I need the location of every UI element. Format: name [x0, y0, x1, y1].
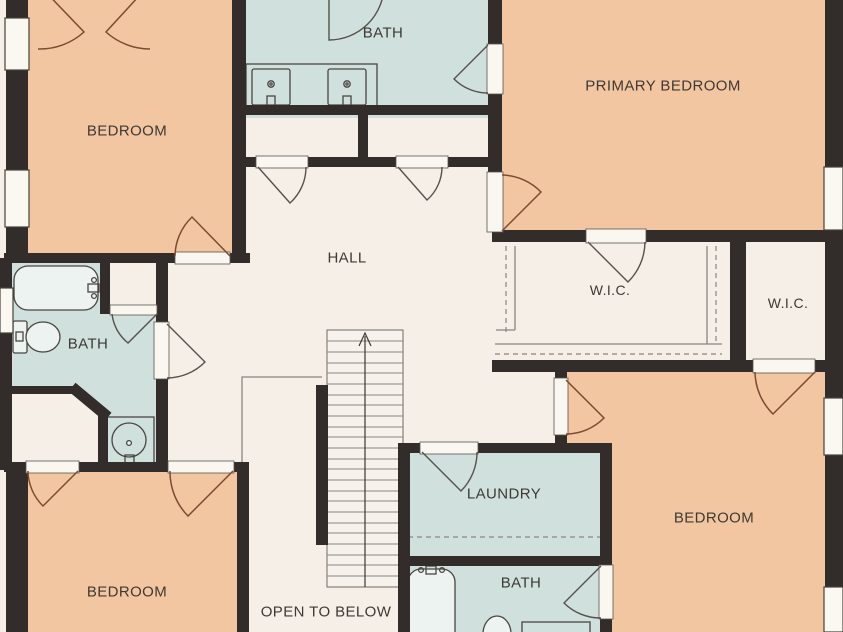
wall-bath-top-bottom: [240, 105, 498, 115]
wall-left-lower: [6, 462, 28, 632]
wall-bedroomTL-right: [232, 0, 246, 258]
room-label-open-to-below: OPEN TO BELOW: [261, 604, 392, 621]
room-label-bedroom-bottom-left: BEDROOM: [87, 584, 167, 601]
room-primary-bedroom: [492, 0, 830, 240]
window: [5, 18, 29, 70]
wall-stairs-left: [316, 385, 328, 545]
wall-closet-divider: [358, 110, 368, 162]
room-bath-top: [240, 0, 495, 118]
wall-closetBL-top: [8, 386, 78, 394]
floor-plan-drawing: [0, 0, 843, 632]
room-bedroom-bottom-left: [8, 466, 243, 632]
room-label-bedroom-bottom-right: BEDROOM: [674, 510, 754, 527]
window: [5, 170, 29, 227]
wall-laundry-bottom: [398, 556, 612, 566]
wall-right: [825, 0, 843, 632]
window: [824, 167, 843, 230]
room-label-bedroom-top-left: BEDROOM: [87, 123, 167, 140]
room-label-primary-bedroom: PRIMARY BEDROOM: [585, 78, 740, 95]
room-label-wic-small: W.I.C.: [768, 295, 809, 311]
window: [0, 288, 13, 333]
bathtub: [408, 569, 455, 632]
floor-plan: BEDROOM BATH PRIMARY BEDROOM HALL W.I.C.…: [0, 0, 843, 632]
window: [824, 587, 843, 632]
room-label-laundry: LAUNDRY: [467, 486, 541, 503]
window: [824, 398, 843, 455]
wall-closetBL-right: [98, 410, 108, 470]
wall-bedroomBL-right: [237, 462, 249, 632]
wall-wic-divider: [730, 232, 746, 372]
wall-laundry-left: [398, 443, 410, 632]
room-label-bath-left: BATH: [68, 336, 109, 353]
bathtub: [14, 266, 98, 310]
room-label-bath-bottom: BATH: [501, 575, 542, 592]
wall-tub-linen-divider: [100, 258, 110, 314]
room-label-wic-large: W.I.C.: [590, 282, 631, 298]
wall-primary-bottom: [492, 230, 843, 242]
toilet: [13, 321, 60, 353]
room-label-bath-top: BATH: [363, 25, 404, 42]
room-label-hall: HALL: [327, 250, 366, 267]
staircase: [327, 330, 403, 587]
